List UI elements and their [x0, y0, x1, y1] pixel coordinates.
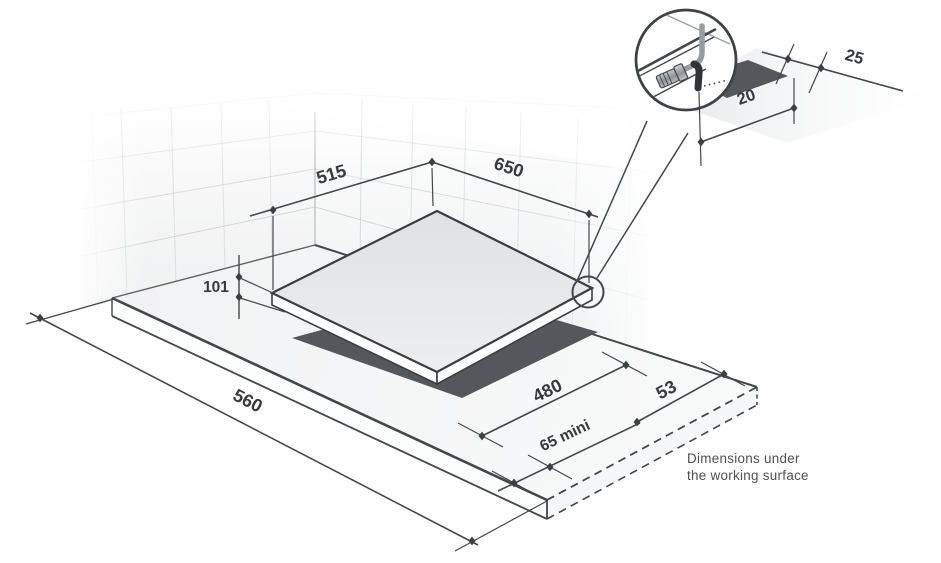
- caption-line2: the working surface: [687, 468, 809, 483]
- wall-top-fade: [60, 50, 680, 175]
- detail-callout-circle: [636, 10, 736, 110]
- dim-560-label: 560: [230, 385, 266, 417]
- installation-diagram: 515 650 101 560 480 53 65 mini 20 25 Dim…: [0, 0, 941, 563]
- caption: Dimensions under the working surface: [687, 451, 809, 483]
- diagram-canvas: 515 650 101 560 480 53 65 mini 20 25 Dim…: [0, 0, 941, 563]
- dim-25-label: 25: [843, 46, 866, 68]
- caption-line1: Dimensions under: [687, 451, 800, 466]
- dim-101-label: 101: [203, 279, 229, 296]
